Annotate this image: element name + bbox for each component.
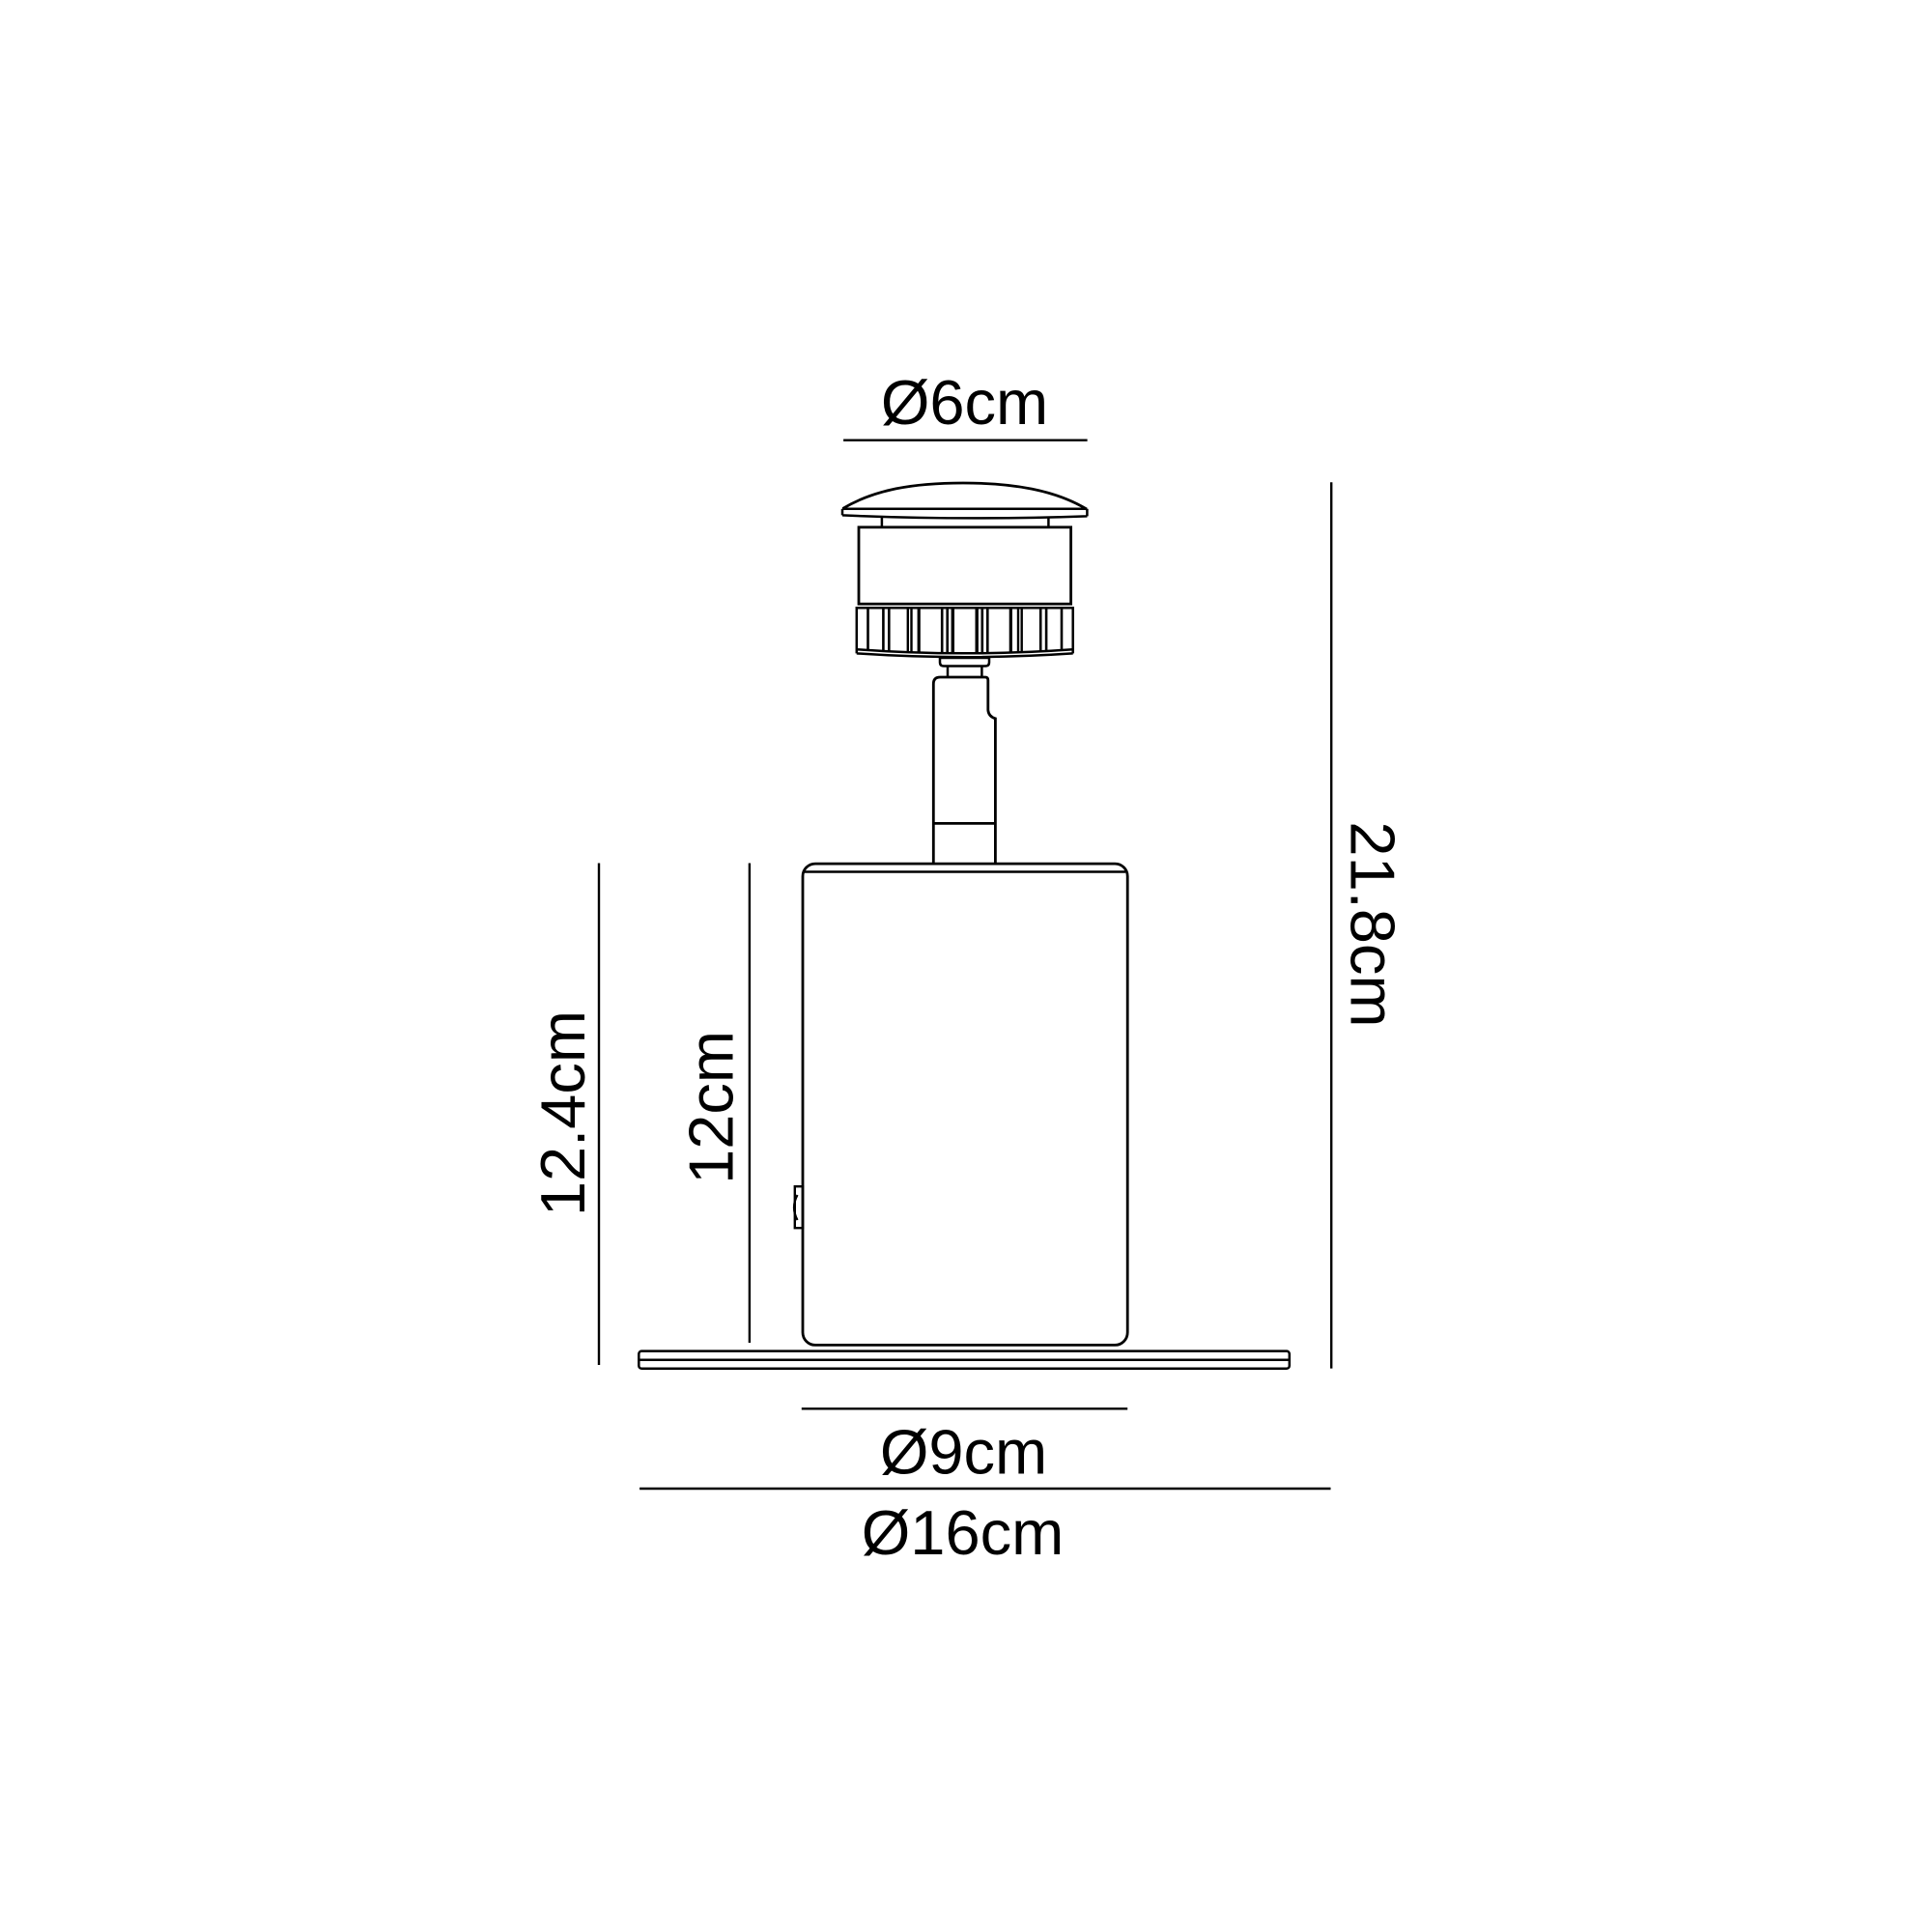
svg-text:Ø16cm: Ø16cm bbox=[862, 1497, 1065, 1568]
svg-text:12.4cm: 12.4cm bbox=[527, 1010, 598, 1216]
svg-text:21.8cm: 21.8cm bbox=[1338, 821, 1408, 1027]
svg-text:Ø6cm: Ø6cm bbox=[881, 367, 1048, 438]
svg-text:12cm: 12cm bbox=[675, 1031, 746, 1184]
svg-text:Ø9cm: Ø9cm bbox=[880, 1417, 1047, 1488]
